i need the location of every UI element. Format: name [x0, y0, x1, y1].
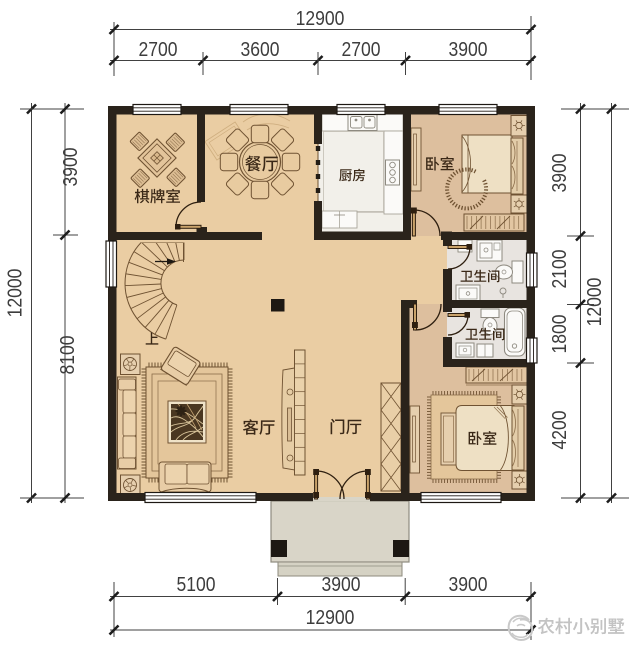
svg-text:12900: 12900	[296, 8, 345, 30]
svg-text:2100: 2100	[549, 250, 571, 289]
svg-text:12000: 12000	[5, 269, 27, 318]
svg-text:3600: 3600	[241, 39, 280, 61]
svg-text:8100: 8100	[57, 336, 79, 375]
svg-text:3900: 3900	[60, 148, 82, 187]
svg-text:3900: 3900	[322, 574, 361, 596]
svg-text:12000: 12000	[584, 278, 606, 327]
svg-text:3900: 3900	[449, 39, 488, 61]
svg-text:4200: 4200	[549, 411, 571, 450]
svg-text:5100: 5100	[177, 574, 216, 596]
svg-text:3900: 3900	[449, 574, 488, 596]
svg-text:12900: 12900	[306, 607, 355, 629]
svg-text:1800: 1800	[549, 315, 571, 354]
svg-text:3900: 3900	[549, 154, 571, 193]
svg-text:2700: 2700	[342, 39, 381, 61]
svg-text:2700: 2700	[139, 39, 178, 61]
